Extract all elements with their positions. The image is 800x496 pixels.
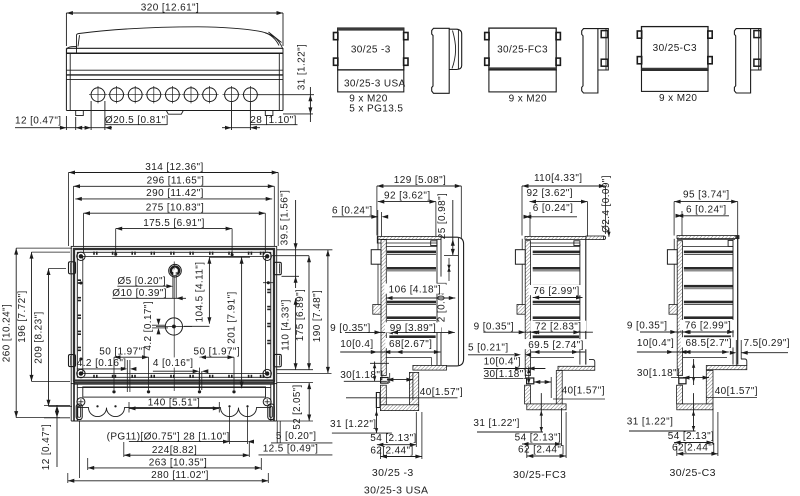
svg-text:54 [2.13"]: 54 [2.13"]: [370, 433, 416, 444]
svg-text:7.5[0.29"]: 7.5[0.29"]: [744, 338, 790, 349]
svg-text:31 [1.22"]: 31 [1.22"]: [330, 419, 376, 430]
svg-text:104.5 [4.11"]: 104.5 [4.11"]: [194, 262, 205, 323]
svg-text:25 [0.98"]: 25 [0.98"]: [437, 193, 448, 239]
svg-text:6 [0.24"]: 6 [0.24"]: [533, 203, 574, 214]
svg-text:76 [2.99"]: 76 [2.99"]: [685, 321, 731, 332]
svg-text:69.5 [2.74"]: 69.5 [2.74"]: [528, 340, 584, 351]
svg-text:92 [3.62"]: 92 [3.62"]: [526, 188, 572, 199]
svg-text:5 x PG13.5: 5 x PG13.5: [349, 104, 403, 115]
svg-text:Ø10 [0.39"]: Ø10 [0.39"]: [112, 288, 167, 299]
svg-text:4.2 [0.17"]: 4.2 [0.17"]: [143, 301, 154, 351]
svg-text:40[1.57"]: 40[1.57"]: [420, 387, 463, 398]
svg-text:175.5 [6.91"]: 175.5 [6.91"]: [143, 218, 205, 229]
svg-text:290 [11.42"]: 290 [11.42"]: [146, 188, 204, 199]
svg-text:260 [10.24"]: 260 [10.24"]: [1, 304, 12, 362]
svg-text:5 [0.20"]: 5 [0.20"]: [276, 431, 317, 442]
svg-text:30/25 -3: 30/25 -3: [372, 467, 414, 479]
svg-text:9 x M20: 9 x M20: [509, 93, 547, 104]
svg-text:50 [1.97"]: 50 [1.97"]: [99, 347, 145, 358]
svg-text:275 [10.83"]: 275 [10.83"]: [146, 203, 204, 214]
svg-text:68[2.67"]: 68[2.67"]: [389, 339, 432, 350]
svg-text:30/25-C3: 30/25-C3: [669, 467, 715, 479]
svg-text:201 [7.91"]: 201 [7.91"]: [226, 291, 237, 343]
svg-text:6 [0.24"]: 6 [0.24"]: [332, 205, 373, 216]
svg-text:4.2 [0.16"]: 4.2 [0.16"]: [77, 358, 127, 369]
svg-text:106 [4.18"]: 106 [4.18"]: [389, 284, 441, 295]
svg-text:209 [8.23"]: 209 [8.23"]: [33, 311, 44, 363]
svg-text:224[8.82]: 224[8.82]: [152, 445, 197, 456]
svg-text:68.5[2.7"]: 68.5[2.7"]: [685, 338, 731, 349]
svg-text:129 [5.08"]: 129 [5.08"]: [394, 175, 446, 186]
svg-text:39.5 [1.56"]: 39.5 [1.56"]: [280, 190, 291, 246]
svg-text:280 [11.02"]: 280 [11.02"]: [151, 470, 209, 481]
svg-text:6 [0.24"]: 6 [0.24"]: [686, 205, 727, 216]
svg-text:(PG11)[Ø0.75"] 28 [1.10"]: (PG11)[Ø0.75"] 28 [1.10"]: [107, 432, 230, 443]
svg-text:Ø2.4 [0.09"]: Ø2.4 [0.09"]: [601, 175, 612, 233]
svg-text:196 [7.72"]: 196 [7.72"]: [17, 290, 28, 342]
svg-text:92 [3.62"]: 92 [3.62"]: [384, 190, 430, 201]
svg-text:52 [2.05"]: 52 [2.05"]: [292, 384, 303, 429]
svg-text:296 [11.65"]: 296 [11.65"]: [147, 176, 205, 187]
svg-text:10[0.4"]: 10[0.4"]: [637, 338, 674, 349]
svg-text:4 [0.16"]: 4 [0.16"]: [153, 358, 194, 369]
svg-text:9 [0.35"]: 9 [0.35"]: [474, 322, 515, 333]
svg-text:9 [0.35"]: 9 [0.35"]: [627, 321, 668, 332]
svg-text:30/25-C3: 30/25-C3: [653, 43, 697, 54]
svg-text:76 [2.99"]: 76 [2.99"]: [533, 286, 579, 297]
svg-text:12.5 [0.49"]: 12.5 [0.49"]: [263, 444, 319, 455]
svg-text:31 [1.22"]: 31 [1.22"]: [473, 418, 519, 429]
svg-text:190 [7.48"]: 190 [7.48"]: [312, 290, 323, 342]
svg-text:Ø5 [0.20"]: Ø5 [0.20"]: [117, 276, 166, 287]
svg-text:314 [12.36"]: 314 [12.36"]: [145, 162, 203, 173]
svg-text:62[2.44"]: 62[2.44"]: [672, 443, 715, 454]
svg-text:10[0.4"]: 10[0.4"]: [484, 356, 521, 367]
svg-text:40[1.57"]: 40[1.57"]: [715, 386, 758, 397]
svg-text:31 [1.22"]: 31 [1.22"]: [627, 417, 673, 428]
svg-text:140 [5.51"]: 140 [5.51"]: [148, 398, 200, 409]
svg-text:9 x M20: 9 x M20: [659, 93, 697, 104]
svg-text:62 [2.44"]: 62 [2.44"]: [518, 445, 564, 456]
svg-text:320 [12.61"]: 320 [12.61"]: [141, 3, 199, 14]
svg-text:30/25-FC3: 30/25-FC3: [513, 469, 566, 481]
svg-text:175 [6.89"]: 175 [6.89"]: [295, 289, 306, 341]
svg-text:10[0.4]: 10[0.4]: [340, 339, 373, 350]
svg-text:30/25 -3: 30/25 -3: [351, 45, 391, 56]
svg-text:30/25-3 USA: 30/25-3 USA: [364, 485, 429, 496]
svg-text:62[2.44"]: 62[2.44"]: [370, 445, 413, 456]
svg-text:12 [0.47"]: 12 [0.47"]: [41, 424, 52, 470]
svg-text:95 [3.74"]: 95 [3.74"]: [683, 189, 729, 200]
svg-text:110 [4.33"]: 110 [4.33"]: [281, 299, 292, 351]
svg-text:12 [0.47"]: 12 [0.47"]: [15, 115, 61, 126]
svg-text:54 [2.13"]: 54 [2.13"]: [668, 431, 714, 442]
svg-text:263 [10.35"]: 263 [10.35"]: [149, 458, 207, 469]
svg-text:30/25-3 USA: 30/25-3 USA: [344, 78, 406, 89]
svg-text:50 [1.97"]: 50 [1.97"]: [194, 347, 240, 358]
svg-text:30[1.18"]: 30[1.18"]: [340, 370, 383, 381]
svg-text:30/25-FC3: 30/25-FC3: [497, 45, 548, 56]
svg-text:40[1.57"]: 40[1.57"]: [562, 386, 605, 397]
svg-text:5 [0.21"]: 5 [0.21"]: [468, 342, 509, 353]
svg-text:54 [2.13"]: 54 [2.13"]: [515, 433, 561, 444]
svg-text:110[4.33"]: 110[4.33"]: [534, 173, 583, 184]
svg-text:31 [1.22"]: 31 [1.22"]: [296, 44, 307, 90]
